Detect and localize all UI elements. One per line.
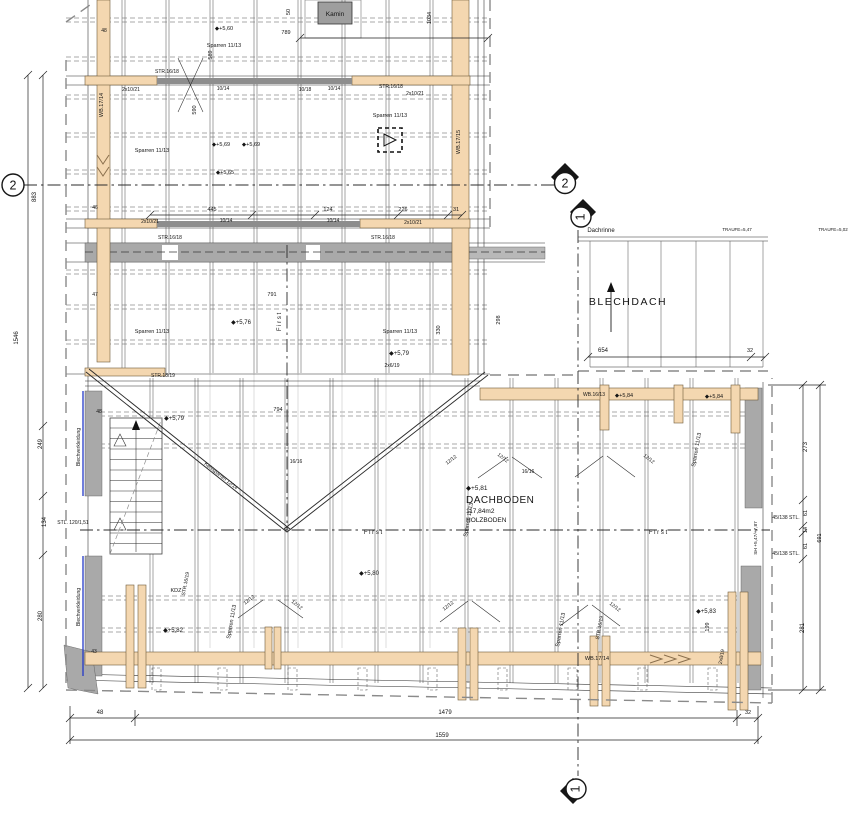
dim: 589: [208, 50, 214, 59]
dim: 31: [453, 207, 459, 213]
dim: 789: [281, 30, 290, 36]
dim: 654: [598, 348, 609, 354]
level-marker: ◆+5,79: [389, 351, 409, 357]
beam-label: WB.17/14: [585, 656, 609, 662]
member-label: STR.16/18: [155, 69, 179, 75]
roof-window-marker: [378, 128, 402, 152]
axis-marker-1-top: 1: [570, 199, 596, 227]
chimney: [305, 0, 361, 38]
member-label: 10/14: [327, 218, 340, 224]
member-label: 2x10/21: [406, 91, 424, 97]
dim: 330: [436, 325, 442, 334]
level-marker: ◆+5,76: [231, 320, 251, 326]
dim: 14: [803, 527, 809, 533]
north-arrow: [607, 282, 615, 292]
room-area: 117,84m2: [466, 508, 495, 515]
dim: 226: [398, 207, 407, 213]
beam-label: WB.17/14: [99, 93, 105, 117]
steel-column-note: 45/138 STL.: [772, 551, 799, 557]
dim: 249: [38, 438, 44, 449]
room-name: BLECHDACH: [589, 296, 667, 308]
level-marker: ◆+5,84: [615, 393, 633, 399]
dim: 43: [91, 649, 97, 655]
level-marker: ◆+5,69: [212, 142, 230, 148]
dim: 61: [803, 510, 809, 516]
dim: 48: [96, 409, 102, 415]
rafter-label: Sparren 11/13: [383, 329, 417, 335]
roof-framing-plan: 2 2 1 1 15468832491342804748434846481479…: [0, 0, 867, 820]
dim: 280: [38, 610, 44, 621]
dim-overall-bottom: 1559: [435, 733, 449, 739]
brace-label: 12/12: [642, 453, 656, 466]
axis-label: 1: [569, 785, 583, 792]
level-marker: ◆+5,60: [215, 26, 233, 32]
level-marker: ◆+5,69: [242, 142, 260, 148]
dim: 199: [705, 622, 711, 631]
rafter-label: Sparren 11/13: [207, 43, 241, 49]
dim: 134: [42, 516, 48, 527]
cladding-label: Blechverkleidung: [76, 588, 82, 626]
member-label: 10/14: [220, 218, 233, 224]
roof-framing-plan-canvas: 2 2 1 1 15468832491342804748434846481479…: [0, 0, 867, 820]
brace-label: 12/12: [496, 452, 510, 465]
dim-overall-right: 691: [817, 533, 823, 542]
member-label: STR.16/18: [371, 235, 395, 241]
rafter-label: Sparren 11/13: [226, 604, 238, 639]
member-label: 16/16: [290, 459, 303, 465]
brace-label: 12/12: [445, 454, 459, 467]
member-label: 2x10/21: [122, 87, 140, 93]
upper-wing-purlins: [66, 18, 490, 344]
eaves-note: TRAUFE=5,47: [722, 227, 752, 232]
steel-column-note: STL. 120/1,51: [57, 520, 89, 526]
level-marker: ◆+5,82: [163, 628, 183, 634]
room-floor: HOLZBODEN: [466, 517, 507, 524]
cladding-label: Blechverkleidung: [76, 428, 82, 466]
dim: 1479: [438, 710, 452, 716]
level-marker: ◆+5,81: [466, 485, 488, 492]
dim: 298: [496, 315, 502, 324]
rafter-label: Sparren 11/13: [555, 612, 567, 647]
level-marker: ◆+5,65: [216, 170, 234, 176]
gutter-label: Dachrinne: [587, 228, 615, 234]
member-label: 2x10/21: [404, 220, 422, 226]
ridge-label: F i r s t: [364, 530, 383, 536]
dim: 32: [745, 710, 751, 716]
eaves-note: TRAUFE=5,02: [818, 227, 848, 232]
brace-label: 12/12: [442, 600, 456, 613]
brace-label: 12/12: [608, 601, 622, 614]
axis-label: 1: [574, 213, 588, 220]
eaves-outline: [66, 0, 772, 703]
dim: 791: [267, 292, 276, 298]
member-label: 2x6/19: [384, 363, 399, 369]
axis-label: 2: [10, 179, 17, 193]
member-label: KDZ: [171, 588, 183, 594]
staircase: [110, 418, 162, 554]
member-label: 10/14: [328, 86, 341, 92]
dim-overall-left: 1546: [14, 331, 20, 345]
dim: 445: [207, 207, 216, 213]
level-marker: ◆+5,79: [164, 416, 184, 422]
dim: 47: [92, 292, 98, 298]
rafter-label: Sparren 11/13: [135, 329, 169, 335]
dim: 273: [803, 441, 809, 452]
beam-label: WB.17/15: [456, 130, 462, 154]
dim: 281: [800, 622, 806, 633]
member-label: STR.18/19: [151, 373, 175, 379]
member-label: STR.16/18: [158, 235, 182, 241]
member-label: 16/16: [522, 469, 535, 475]
dim: 124: [323, 207, 332, 213]
rafter-label: Sparren 11/13: [135, 148, 169, 154]
level-marker: ◆+5,80: [359, 571, 379, 577]
beam-label: WB.16/13: [583, 392, 605, 398]
steel-column-note: 45/138 STL.: [772, 515, 799, 521]
axis-marker-2-right: 2: [551, 163, 579, 194]
member-label: 2x10/21: [141, 219, 159, 225]
dim: 794: [273, 407, 282, 413]
axis-label: 2: [562, 177, 569, 191]
height-note: SH +5,47/+7,87: [753, 521, 759, 555]
valley-rafter-label: Kehlsparren 12/14: [203, 461, 239, 491]
level-marker: ◆+5,84: [705, 394, 723, 400]
member-label: STR.16/19: [181, 571, 191, 596]
rafter-tails: [152, 668, 717, 690]
level-marker: ◆+5,83: [696, 609, 716, 615]
dim: 32: [747, 348, 753, 354]
dim: 883: [32, 191, 38, 202]
room-name: DACHBODEN: [466, 495, 534, 506]
ridge-label: F i r s t: [277, 313, 283, 332]
member-label: STR.16/18: [379, 84, 403, 90]
chimney-label: Kamin: [326, 11, 345, 18]
dim: 590: [192, 105, 198, 114]
dim: 50: [286, 9, 292, 15]
dim: 1034: [427, 12, 433, 24]
member-label: 10/18: [299, 87, 312, 93]
dim: 48: [101, 28, 107, 34]
member-label: 10/14: [217, 86, 230, 92]
rafter-label: Sparren 11/13: [373, 113, 407, 119]
axis-marker-2-left: 2: [2, 174, 24, 196]
dim: 46: [92, 205, 98, 211]
dim: 61: [803, 543, 809, 549]
plate-lines: [66, 76, 772, 698]
axis-marker-1-bottom: 1: [560, 778, 586, 804]
lower-wing-purlins: [100, 412, 763, 632]
dim: 48: [97, 710, 104, 716]
ridge-label: F i r s t: [649, 530, 668, 536]
